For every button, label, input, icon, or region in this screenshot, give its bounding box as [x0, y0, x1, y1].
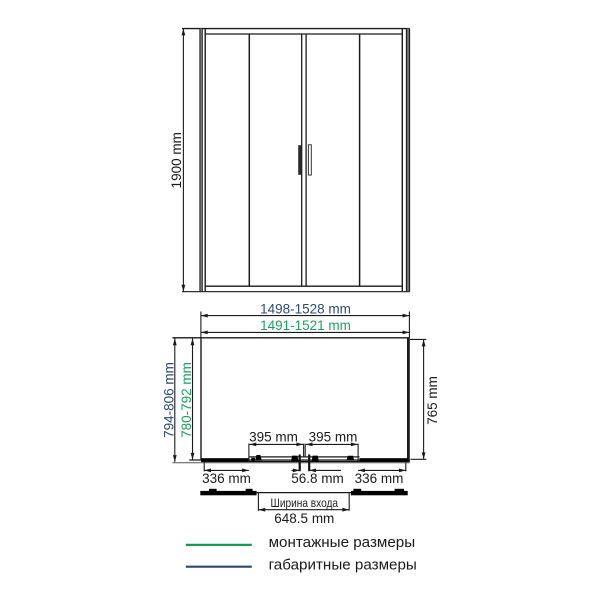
svg-text:1491-1521 mm: 1491-1521 mm — [260, 318, 351, 333]
svg-text:648.5 mm: 648.5 mm — [274, 511, 334, 526]
svg-text:1900 mm: 1900 mm — [169, 132, 184, 188]
svg-text:794-806 mm: 794-806 mm — [162, 362, 177, 438]
svg-text:56.8 mm: 56.8 mm — [291, 471, 344, 486]
svg-text:габаритные размеры: габаритные размеры — [269, 557, 417, 574]
svg-text:336 mm: 336 mm — [355, 471, 404, 486]
svg-text:336 mm: 336 mm — [202, 471, 251, 486]
svg-text:монтажные размеры: монтажные размеры — [269, 534, 416, 551]
svg-text:395 mm: 395 mm — [249, 430, 298, 445]
svg-text:1498-1528 mm: 1498-1528 mm — [260, 301, 351, 316]
svg-text:395 mm: 395 mm — [309, 430, 358, 445]
svg-text:765 mm: 765 mm — [425, 376, 440, 425]
svg-text:Ширина входа: Ширина входа — [271, 496, 339, 510]
svg-text:780-792 mm: 780-792 mm — [179, 362, 194, 438]
